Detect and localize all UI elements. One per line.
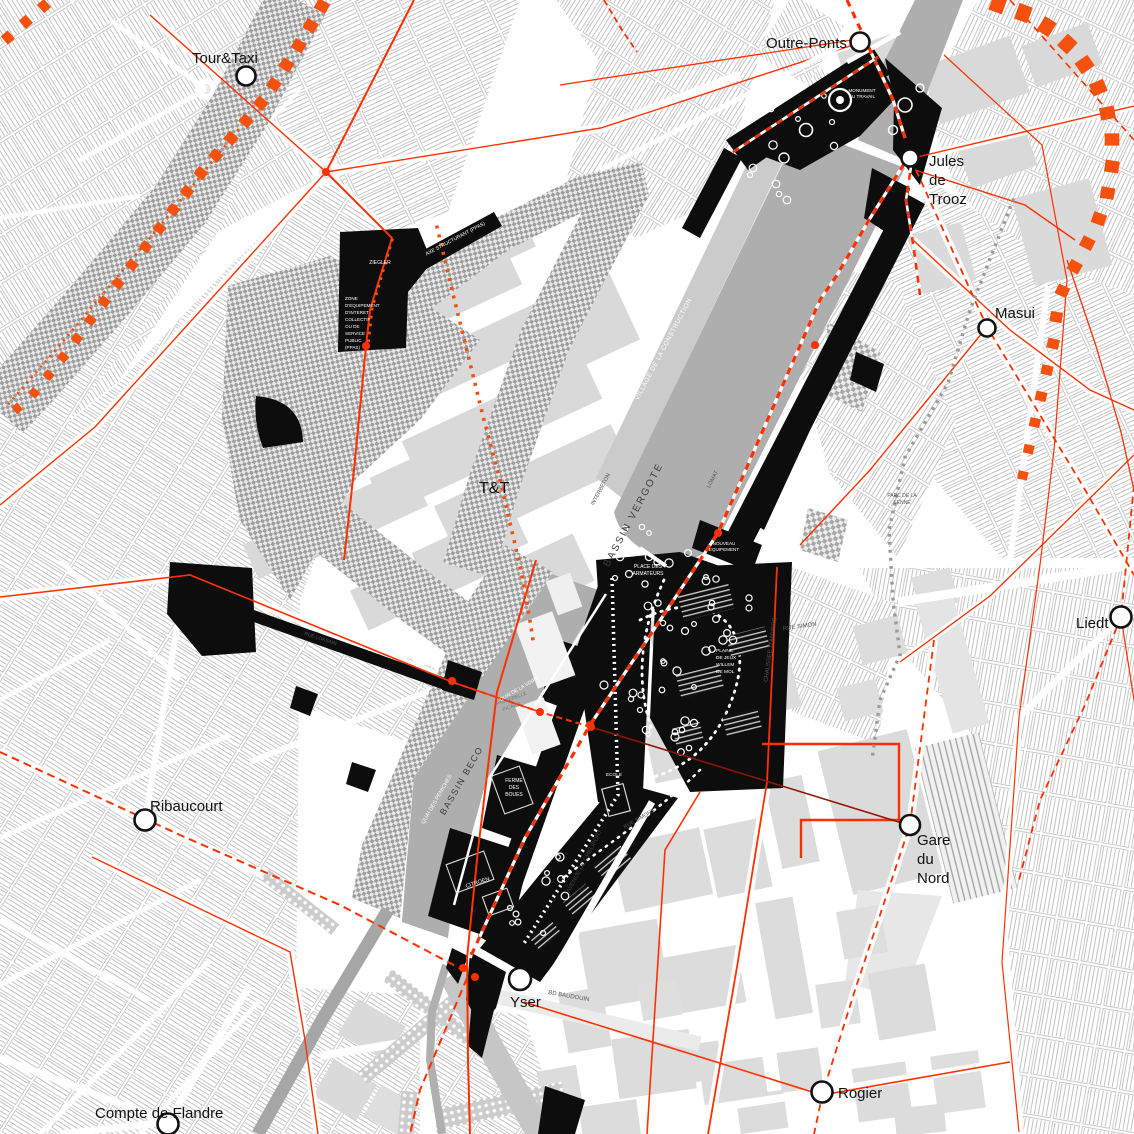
svg-text:COLLECTIF: COLLECTIF [345, 317, 370, 322]
svg-text:Compte de Flandre: Compte de Flandre [95, 1105, 223, 1122]
svg-text:Jules: Jules [929, 153, 964, 170]
svg-text:ZIEGLER: ZIEGLER [369, 260, 391, 266]
svg-text:(PPAS): (PPAS) [345, 345, 360, 350]
svg-text:Yser: Yser [510, 994, 541, 1011]
svg-text:Outre-Ponts: Outre-Ponts [766, 35, 847, 52]
svg-text:FERME: FERME [505, 778, 523, 784]
svg-text:PLAINE: PLAINE [716, 648, 733, 654]
svg-text:WILLEM: WILLEM [716, 662, 734, 668]
svg-text:de: de [929, 172, 946, 189]
svg-text:T&T: T&T [479, 480, 509, 497]
svg-text:Tour&Taxi: Tour&Taxi [192, 50, 258, 67]
svg-text:D'EQUIPEMENT: D'EQUIPEMENT [345, 303, 380, 308]
svg-text:NOUVEAU: NOUVEAU [713, 541, 736, 546]
svg-text:ZONE: ZONE [345, 296, 358, 301]
svg-text:Liedt: Liedt [1076, 615, 1109, 632]
svg-text:PUBLIC: PUBLIC [345, 338, 362, 343]
svg-text:MONUMENT: MONUMENT [848, 88, 875, 93]
svg-text:SENNE: SENNE [893, 500, 911, 506]
svg-text:DE JEUX: DE JEUX [716, 655, 737, 661]
svg-text:du: du [917, 851, 934, 868]
svg-text:DE MOL: DE MOL [716, 669, 735, 675]
svg-text:PLACE DES: PLACE DES [634, 564, 663, 570]
svg-text:EQUIPEMENT: EQUIPEMENT [709, 547, 740, 552]
svg-text:ECOLE: ECOLE [606, 772, 622, 778]
svg-text:ARMATEURS: ARMATEURS [632, 571, 664, 577]
svg-text:Gare: Gare [917, 832, 950, 849]
svg-text:AU TRAVAIL: AU TRAVAIL [849, 94, 875, 99]
svg-text:OU DE: OU DE [345, 324, 360, 329]
svg-text:DES: DES [509, 785, 520, 791]
svg-text:Rogier: Rogier [838, 1085, 882, 1102]
svg-text:PARC DE LA: PARC DE LA [887, 493, 917, 499]
svg-text:Nord: Nord [917, 870, 950, 887]
svg-text:BOUES: BOUES [505, 792, 523, 798]
svg-text:SERVICE: SERVICE [345, 331, 365, 336]
svg-text:Trooz: Trooz [929, 191, 967, 208]
svg-text:Ribaucourt: Ribaucourt [150, 798, 223, 815]
svg-text:D'INTERET: D'INTERET [345, 310, 369, 315]
svg-text:Masui: Masui [995, 305, 1035, 322]
